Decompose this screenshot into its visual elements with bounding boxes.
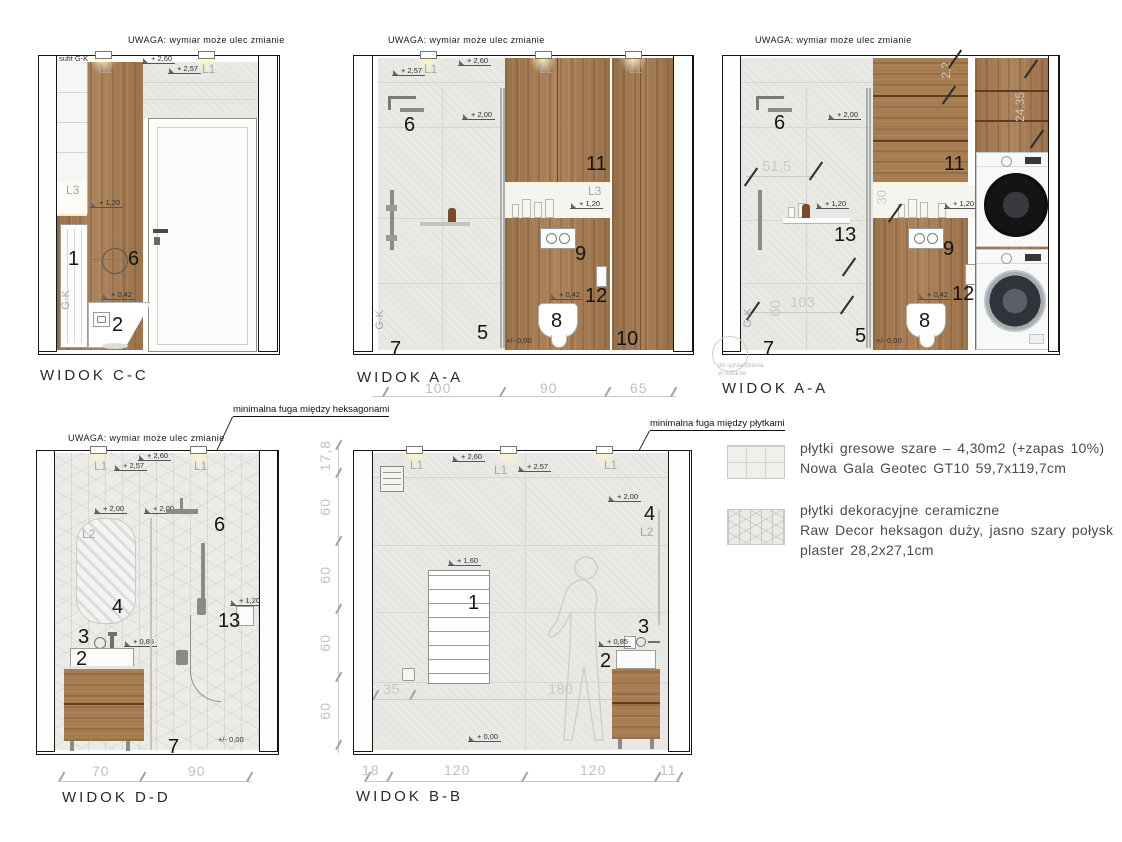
faucet-spout-icon <box>108 632 117 636</box>
tile-joint <box>740 127 873 128</box>
door-panel-line <box>157 127 248 345</box>
tile-joint <box>525 453 526 750</box>
vanity-leg <box>70 741 74 751</box>
tile-joint <box>378 127 505 128</box>
ref-number-7: 7 <box>390 338 401 360</box>
ref-number-3: 3 <box>78 626 89 648</box>
light-label-l1: L1 <box>494 464 507 477</box>
shelf-line <box>57 152 87 153</box>
wall-post <box>259 450 278 752</box>
level-marker: + 1,20 <box>816 199 849 209</box>
dim-value: 90 <box>540 381 558 396</box>
level-marker: + 0,42 <box>102 290 135 300</box>
level-marker: + 2,60 <box>138 451 171 461</box>
ref-number-7: 7 <box>168 736 179 758</box>
hand-shower <box>197 598 206 615</box>
level-marker: + 1,20 <box>90 198 123 208</box>
drawing-canvas: UWAGA: wymiar może ulec zmianie sufit G-… <box>0 0 1122 842</box>
light-label-l1: L1 <box>410 459 423 472</box>
washer-drawer <box>1029 334 1044 344</box>
led-strip-vertical <box>658 510 660 625</box>
shelf-line <box>57 122 87 123</box>
ref-number-3: 3 <box>638 616 649 638</box>
tile-joint <box>372 545 668 546</box>
drawer-gap <box>873 95 968 97</box>
legend-swatch-hexagon <box>727 509 785 545</box>
shower-arm-icon <box>756 96 784 99</box>
wall-post <box>1048 55 1059 352</box>
washer-door <box>984 270 1046 332</box>
gk-wall-label: G-K <box>374 310 386 330</box>
bottle-icon <box>788 207 795 218</box>
pencil-dim: 24,35 <box>1014 92 1027 122</box>
ref-number-12: 12 <box>585 285 607 307</box>
level-marker: + 2,57 <box>392 66 425 76</box>
towel-radiator <box>428 570 490 684</box>
view-title-dd: WIDOK D-D <box>62 790 171 807</box>
flush-button-icon <box>559 233 570 244</box>
view-title-cc: WIDOK C-C <box>40 368 149 385</box>
level-marker: + 1,20 <box>944 199 977 209</box>
pencil-dim: 30 <box>875 190 889 204</box>
pencil-dim: 35 <box>383 682 400 699</box>
light-label-l1: L1 <box>202 63 215 76</box>
ref-number-6: 6 <box>404 114 415 136</box>
wall-post <box>353 450 373 752</box>
light-label-l2: L2 <box>640 526 653 539</box>
ceiling-label: sufit G-K <box>59 55 88 63</box>
ref-number-8: 8 <box>919 310 930 332</box>
vanity-leg <box>126 741 130 751</box>
shower-arm-icon <box>388 96 416 99</box>
shower-tile-wall <box>378 58 505 350</box>
grille-slat <box>383 472 401 473</box>
dim-line <box>60 781 252 782</box>
level-marker: + 2,60 <box>452 452 485 462</box>
view-title-aa2: WIDOK A-A <box>722 381 828 398</box>
legend-hex-line1: płytki dekoracyjne ceramiczne <box>800 503 999 518</box>
shower-pipe-icon <box>388 96 391 110</box>
tile-joint <box>740 82 873 83</box>
ref-number-4: 4 <box>644 503 655 525</box>
ref-number-6: 6 <box>214 514 225 536</box>
shower-valve <box>386 205 397 211</box>
radiator-line <box>67 229 68 343</box>
dim-value: 60 <box>318 634 333 652</box>
pencil-dim: 60 <box>768 300 785 317</box>
light-label-l3: L3 <box>66 184 79 197</box>
ref-number-9: 9 <box>943 238 954 260</box>
shower-slide-bar <box>201 543 205 601</box>
dryer-display <box>1025 157 1041 164</box>
drawer-gap <box>64 703 144 705</box>
dim-value: 120 <box>444 763 470 778</box>
ref-number-9: 9 <box>575 243 586 265</box>
ceiling-light <box>420 51 437 59</box>
ref-number-2: 2 <box>600 650 611 672</box>
level-marker: + 0,42 <box>550 290 583 300</box>
light-label-l1: L1 <box>539 63 552 76</box>
ref-number-4: 4 <box>112 596 123 618</box>
panel-line <box>977 166 1049 167</box>
check-note-line2: w naturze <box>718 370 746 377</box>
flush-button-icon <box>914 233 925 244</box>
flush-button-icon <box>546 233 557 244</box>
door-lock <box>154 237 160 245</box>
pencil-dim-line <box>746 312 846 313</box>
door-handle-element <box>596 266 607 287</box>
plant-icon <box>802 204 810 218</box>
pencil-dim-line <box>746 176 816 177</box>
ref-number-11: 11 <box>944 153 965 175</box>
tile-joint <box>378 82 505 83</box>
dim-value: 17,8 <box>318 440 333 471</box>
dim-chain-line <box>338 447 339 753</box>
legend-gres-line1: płytki gresowe szare – 4,30m2 (+zapas 10… <box>800 441 1104 456</box>
wall-outlet-circle <box>102 248 128 274</box>
ref-number-6: 6 <box>774 112 785 134</box>
vanity-cabinet <box>64 669 144 741</box>
level-marker: + 1,60 <box>448 556 481 566</box>
tile-joint <box>143 99 258 100</box>
shower-column <box>758 190 762 250</box>
dim-value: 11 <box>660 763 677 778</box>
tile-joint <box>740 283 873 284</box>
level-marker: + 0,85 <box>124 637 157 647</box>
light-label-l3: L3 <box>588 185 601 198</box>
shower-glass-edge <box>866 88 868 348</box>
door-handle <box>153 229 168 233</box>
shower-column <box>390 190 394 250</box>
bottles-icon <box>898 198 928 218</box>
ref-number-5: 5 <box>477 322 488 344</box>
plank-joint <box>640 58 641 350</box>
level-marker: + 2,00 <box>608 492 641 502</box>
bottle-icon <box>512 204 519 218</box>
ref-number-1: 1 <box>68 248 79 270</box>
wall-post <box>668 450 690 752</box>
crosshair-line <box>113 238 114 282</box>
flush-plate <box>93 312 110 327</box>
legend-swatch-gres <box>727 445 785 479</box>
note-uwaga: UWAGA: wymiar może ulec zmianie <box>388 36 545 46</box>
ceiling-light <box>406 446 423 454</box>
level-marker: + 2,57 <box>168 64 201 74</box>
washing-machine <box>976 249 1050 350</box>
flush-plate <box>908 228 944 249</box>
level-marker: + 2,57 <box>518 462 551 472</box>
callout-tile-grout: minimalna fuga między płytkami <box>650 419 785 431</box>
grille-slat <box>383 484 401 485</box>
light-label-l1: L1 <box>424 63 437 76</box>
note-uwaga: UWAGA: wymiar może ulec zmianie <box>68 434 225 444</box>
level-marker: + 2,00 <box>828 110 861 120</box>
gk-wall-label: G-K <box>742 308 754 328</box>
ceiling-light <box>90 446 107 454</box>
ceiling-light <box>198 51 215 59</box>
tile-joint <box>143 82 258 83</box>
level-marker: + 2,60 <box>142 54 175 64</box>
ceiling-light <box>190 446 207 454</box>
shelf-line <box>57 92 87 93</box>
level-zero: +/- 0,00 <box>506 337 532 345</box>
radiator-line <box>81 229 82 343</box>
dim-value: 100 <box>425 381 451 396</box>
shower-head-icon <box>400 108 424 112</box>
flush-button-icon <box>927 233 938 244</box>
pencil-dim: 103 <box>790 295 815 312</box>
dryer <box>976 152 1050 247</box>
tile-joint <box>372 477 668 478</box>
rain-shower-head <box>166 509 198 514</box>
panel-line <box>977 263 1049 264</box>
ref-number-2: 2 <box>112 314 123 336</box>
toilet-base <box>102 343 128 349</box>
shower-mixer <box>176 650 188 665</box>
faucet-arm-icon <box>648 641 660 643</box>
light-label-l1: L1 <box>629 63 642 76</box>
callout-hex-grout: minimalna fuga między heksagonami <box>233 405 389 417</box>
bottle-icon <box>545 199 554 218</box>
drawer-gap <box>975 90 1048 92</box>
bottle-icon <box>534 202 542 218</box>
tile-joint <box>378 218 505 219</box>
ceiling-light <box>500 446 517 454</box>
ref-number-8: 8 <box>551 310 562 332</box>
level-marker: + 0,00 <box>468 732 501 742</box>
ref-number-10: 10 <box>616 328 638 350</box>
ref-number-11: 11 <box>586 153 607 175</box>
level-marker: + 0,42 <box>918 290 951 300</box>
level-zero: +/- 0,00 <box>218 736 244 744</box>
shower-glass-edge <box>500 88 502 348</box>
dim-value: 60 <box>318 498 333 516</box>
legend-gres-line2: Nowa Gala Geotec GT10 59,7x119,7cm <box>800 461 1066 476</box>
gk-wall-label: G-K <box>60 290 72 310</box>
drawer-gap <box>873 140 968 142</box>
ref-number-6: 6 <box>128 248 139 270</box>
ref-number-5: 5 <box>855 325 866 347</box>
ceiling-light <box>625 51 642 59</box>
dim-value: 70 <box>92 764 110 779</box>
cabinet-door-split <box>557 58 558 185</box>
bottles-icon <box>512 198 554 218</box>
flush-button-icon <box>97 316 106 323</box>
legend-hex-line2: Raw Decor heksagon duży, jasno szary poł… <box>800 523 1113 538</box>
level-marker: + 2,60 <box>458 56 491 66</box>
ref-number-13: 13 <box>218 610 240 632</box>
flush-plate <box>540 228 576 249</box>
shower-pipe-icon <box>756 96 759 110</box>
bottle-icon <box>920 202 928 218</box>
light-label-l1: L1 <box>94 460 107 473</box>
bottle-icon <box>522 199 531 218</box>
light-label-l2: L2 <box>82 528 95 541</box>
dryer-knob <box>1001 156 1012 167</box>
level-marker: + 1,20 <box>570 199 603 209</box>
check-note-line1: do sprawdzenia <box>718 362 764 369</box>
dim-line <box>366 781 680 782</box>
vent-grille <box>380 466 404 492</box>
shower-valve <box>386 235 397 241</box>
dim-value: 60 <box>318 566 333 584</box>
wall-post <box>258 55 278 352</box>
ceiling-light <box>596 446 613 454</box>
ceiling-light <box>535 51 552 59</box>
ref-number-7: 7 <box>763 338 774 360</box>
tile-joint <box>378 283 505 284</box>
dim-value: 90 <box>188 764 206 779</box>
socket-icon <box>402 668 415 681</box>
dim-value: 60 <box>318 702 333 720</box>
washer-display <box>1025 254 1041 261</box>
wall-post <box>353 55 373 352</box>
washer-knob <box>1001 253 1012 264</box>
level-marker: + 2,57 <box>114 461 147 471</box>
level-zero: +/- 0,00 <box>876 337 902 345</box>
dryer-door <box>984 173 1048 237</box>
dim-value: 120 <box>580 763 606 778</box>
wall-post <box>673 55 693 352</box>
towel-radiator-side <box>60 224 88 348</box>
level-marker: + 2,00 <box>462 110 495 120</box>
view-title-bb: WIDOK B-B <box>356 789 463 806</box>
ref-number-2: 2 <box>76 648 87 670</box>
door <box>148 118 257 352</box>
wall-post <box>38 55 57 352</box>
wall-post <box>36 450 55 752</box>
faucet-valve-icon <box>636 637 646 647</box>
bottle-icon <box>908 199 917 218</box>
ref-number-1: 1 <box>468 592 479 614</box>
ceiling-light <box>95 51 112 59</box>
ref-number-13: 13 <box>834 224 856 246</box>
dim-value: 65 <box>630 381 648 396</box>
light-label-l1: L1 <box>99 63 112 76</box>
vanity-leg <box>650 739 654 749</box>
radiator-line <box>74 229 75 343</box>
pencil-dim: 51,5 <box>762 159 791 176</box>
note-uwaga: UWAGA: wymiar może ulec zmianie <box>755 36 912 46</box>
wood-panel-right <box>612 58 673 350</box>
grille-slat <box>383 478 401 479</box>
shower-shelf <box>420 222 470 226</box>
ref-number-12: 12 <box>952 283 974 305</box>
glass-partition <box>150 518 152 750</box>
shower-glass-edge <box>869 88 871 348</box>
wall-post <box>722 55 741 352</box>
level-marker: + 2,00 <box>94 504 127 514</box>
light-label-l1: L1 <box>604 459 617 472</box>
dim-value: 18 <box>362 763 380 778</box>
legend-hex-line3: plaster 28,2x27,1cm <box>800 543 934 558</box>
plant-icon <box>448 208 456 222</box>
human-silhouette <box>538 554 630 753</box>
light-label-l1: L1 <box>194 460 207 473</box>
drawer-gap <box>975 120 1048 122</box>
note-uwaga: UWAGA: wymiar może ulec zmianie <box>128 36 285 46</box>
